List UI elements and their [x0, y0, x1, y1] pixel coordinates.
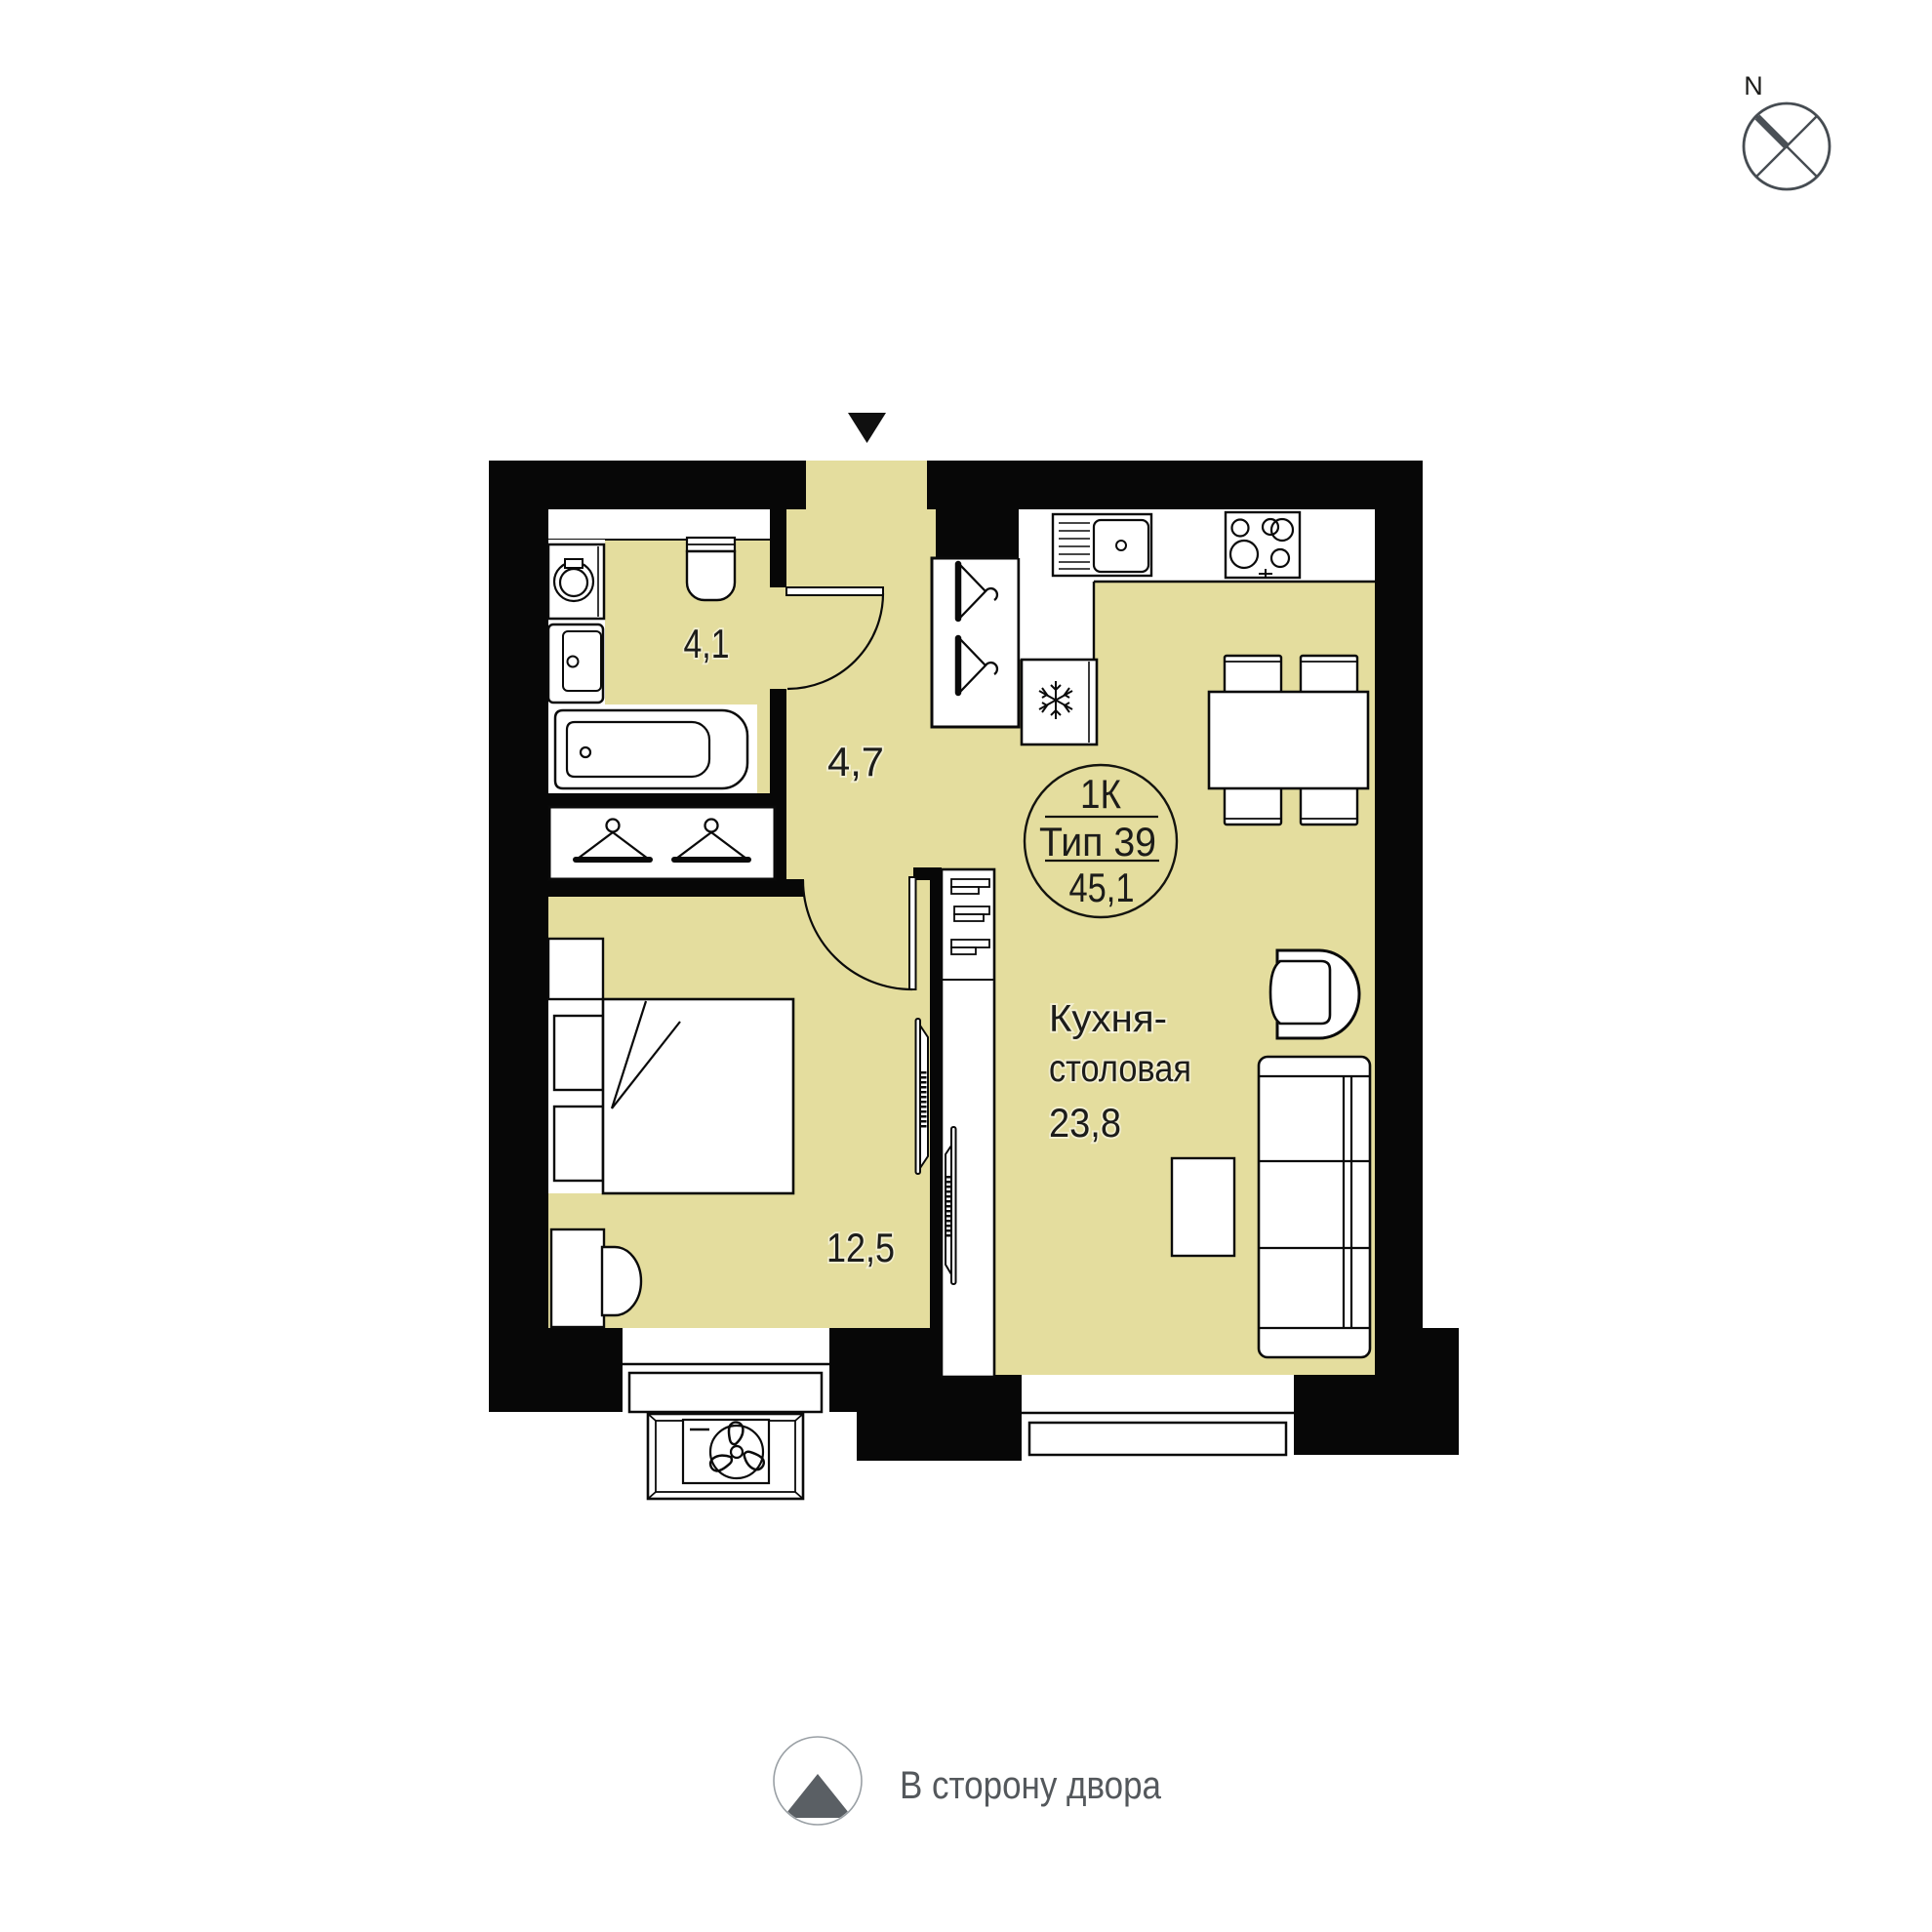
svg-text:1К: 1К [1080, 771, 1121, 817]
svg-text:23,8: 23,8 [1049, 1100, 1121, 1146]
svg-text:Тип 39: Тип 39 [1039, 819, 1156, 865]
svg-text:4,1: 4,1 [684, 621, 730, 666]
svg-text:Кухня-: Кухня- [1049, 998, 1167, 1040]
svg-text:12,5: 12,5 [826, 1225, 895, 1270]
svg-text:В сторону двора: В сторону двора [900, 1764, 1162, 1807]
svg-text:N: N [1744, 71, 1763, 101]
svg-text:4,7: 4,7 [827, 739, 884, 785]
svg-text:столовая: столовая [1049, 1048, 1191, 1090]
svg-text:45,1: 45,1 [1069, 865, 1135, 910]
